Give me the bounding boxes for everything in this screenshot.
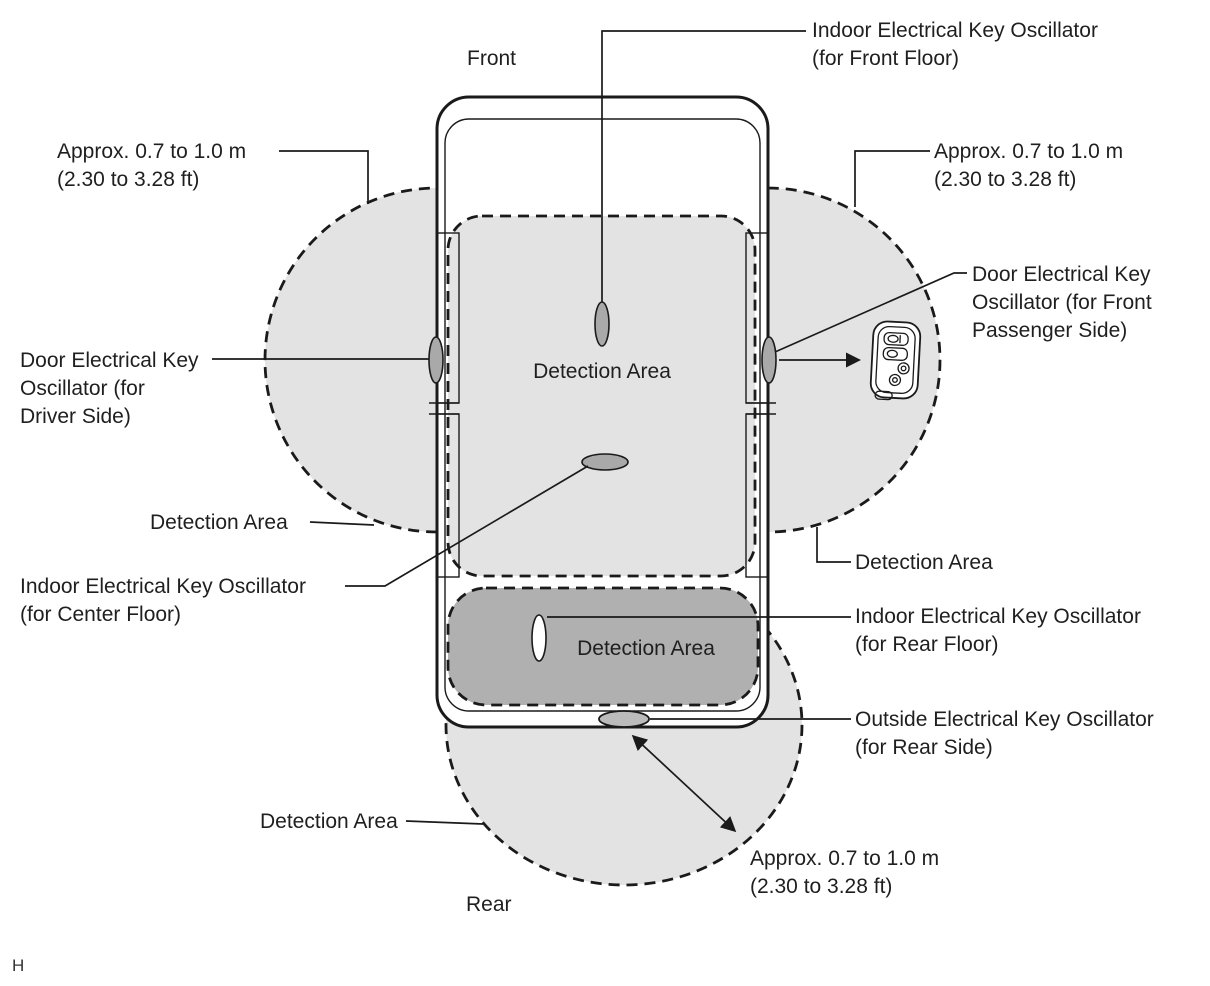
label-outside-rear-oscillator: Outside Electrical Key Oscillator (for R… [855, 706, 1154, 762]
label-passenger-door-oscillator: Door Electrical Key Oscillator (for Fron… [972, 261, 1152, 345]
leader-detection-bottom [406, 821, 483, 824]
label-detection-area-bottom: Detection Area [260, 808, 398, 836]
leader-detection-left [310, 522, 374, 525]
label-driver-door-oscillator: Door Electrical Key Oscillator (for Driv… [20, 347, 199, 431]
label-approx-distance-right: Approx. 0.7 to 1.0 m (2.30 to 3.28 ft) [934, 138, 1123, 194]
leader-approx-left [279, 151, 368, 204]
label-approx-distance-left: Approx. 0.7 to 1.0 m (2.30 to 3.28 ft) [57, 138, 246, 194]
rear-detection-area-label: Detection Area [646, 635, 784, 663]
label-detection-area-left: Detection Area [150, 509, 288, 537]
label-center-floor-oscillator: Indoor Electrical Key Oscillator (for Ce… [20, 573, 306, 629]
leader-detection-right [817, 527, 851, 562]
rear-label: Rear [466, 891, 512, 919]
driver-door-oscillator [429, 337, 443, 383]
label-approx-distance-bottom: Approx. 0.7 to 1.0 m (2.30 to 3.28 ft) [750, 845, 939, 901]
label-front-floor-oscillator: Indoor Electrical Key Oscillator (for Fr… [812, 17, 1098, 73]
passenger-door-oscillator [762, 337, 776, 383]
outside-rear-oscillator [599, 711, 649, 727]
center-floor-oscillator [582, 454, 628, 470]
cabin-detection-area-label: Detection Area [602, 358, 740, 386]
rear-floor-oscillator [532, 615, 546, 661]
leader-approx-right [855, 151, 930, 207]
front-label: Front [467, 45, 516, 73]
smart-key-detection-diagram: Front Rear Indoor Electrical Key Oscilla… [0, 0, 1210, 986]
front-floor-oscillator [595, 302, 609, 346]
page-marker: H [12, 956, 24, 976]
key-fob-icon [870, 321, 921, 401]
label-detection-area-right: Detection Area [855, 549, 993, 577]
label-rear-floor-oscillator: Indoor Electrical Key Oscillator (for Re… [855, 603, 1141, 659]
